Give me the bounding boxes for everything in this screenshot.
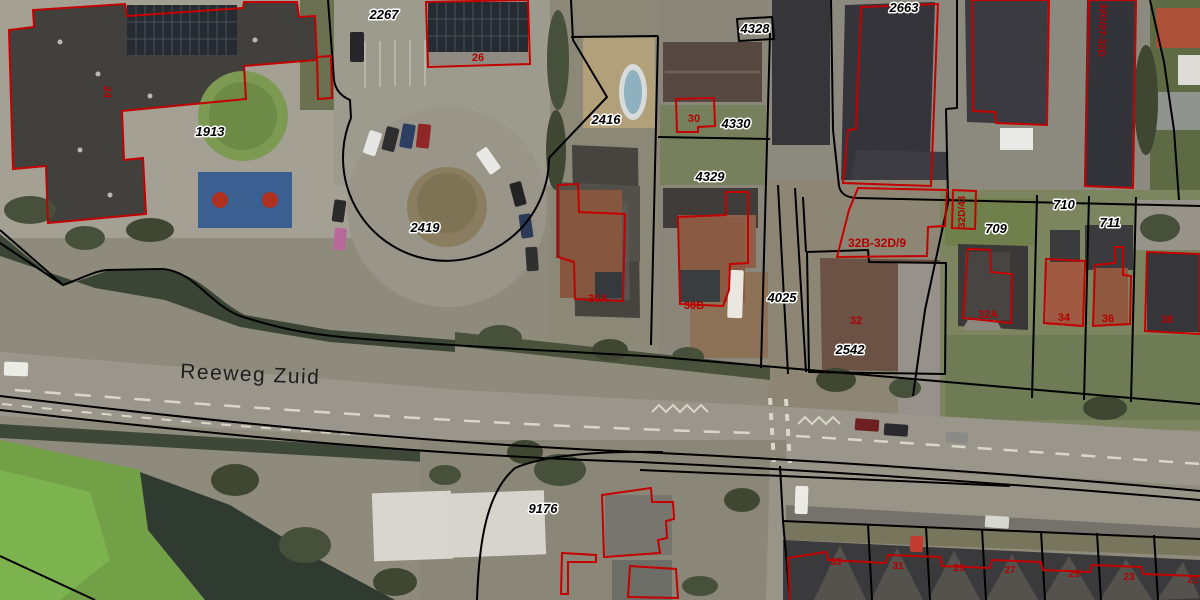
address-label: 32B-32D/9 — [848, 236, 906, 250]
address-label: 38 — [1161, 314, 1173, 326]
white-house — [372, 491, 453, 562]
address-label: 32C/27-32D — [1095, 3, 1108, 57]
address-label: 30B — [684, 300, 704, 312]
parcel-boundary-line — [571, 36, 658, 37]
parcel-label: 9176 — [529, 501, 559, 516]
address-label: 29 — [953, 563, 965, 574]
industrial-roof — [965, 0, 1048, 125]
parcel-label: 2419 — [410, 220, 441, 235]
address-label: 32D/43 — [957, 195, 968, 228]
address-label: 34 — [1058, 312, 1071, 324]
white-shed — [1000, 128, 1033, 150]
address-label: 36 — [1102, 313, 1114, 325]
parcel-label: 2663 — [889, 0, 920, 15]
address-label: 27 — [1004, 565, 1016, 576]
solar-roof-26 — [428, 2, 528, 52]
parcel-label: 711 — [1100, 215, 1121, 230]
address-label: 26 — [472, 52, 484, 64]
parcel-label: 4025 — [767, 290, 798, 305]
parcel-label: 2542 — [835, 342, 866, 357]
address-label: 32A — [978, 309, 998, 321]
address-label: 30A — [588, 293, 608, 305]
parcel-label: 4329 — [695, 169, 726, 184]
address-label: 21 — [1187, 575, 1199, 586]
parcel-label: 710 — [1053, 197, 1075, 212]
address-label: 24 — [101, 86, 113, 99]
address-label: 33 — [830, 557, 842, 568]
parcel-label: 4328 — [740, 21, 771, 36]
industrial-roof — [1084, 0, 1135, 188]
address-label: 32 — [850, 315, 862, 327]
industrial-roof — [772, 0, 830, 145]
address-label: 25 — [1068, 569, 1080, 580]
house-roof-9176 — [605, 495, 672, 555]
parcel-label: 2267 — [369, 7, 400, 22]
address-label: 30 — [688, 113, 700, 125]
address-label: 31 — [892, 561, 904, 572]
map-viewport[interactable]: 2267 1913 2416 2419 4328 4330 4329 4025 … — [0, 0, 1200, 600]
house-roof-38 — [1147, 253, 1200, 332]
orange-roof — [1156, 8, 1200, 48]
aerial-map[interactable]: 2267 1913 2416 2419 4328 4330 4329 4025 … — [0, 0, 1200, 600]
address-label: 23 — [1123, 572, 1135, 583]
parcel-label: 4330 — [721, 116, 752, 131]
parcel-label: 2416 — [591, 112, 622, 127]
parcel-label: 1913 — [196, 124, 226, 139]
parcel-label: 709 — [985, 221, 1007, 236]
